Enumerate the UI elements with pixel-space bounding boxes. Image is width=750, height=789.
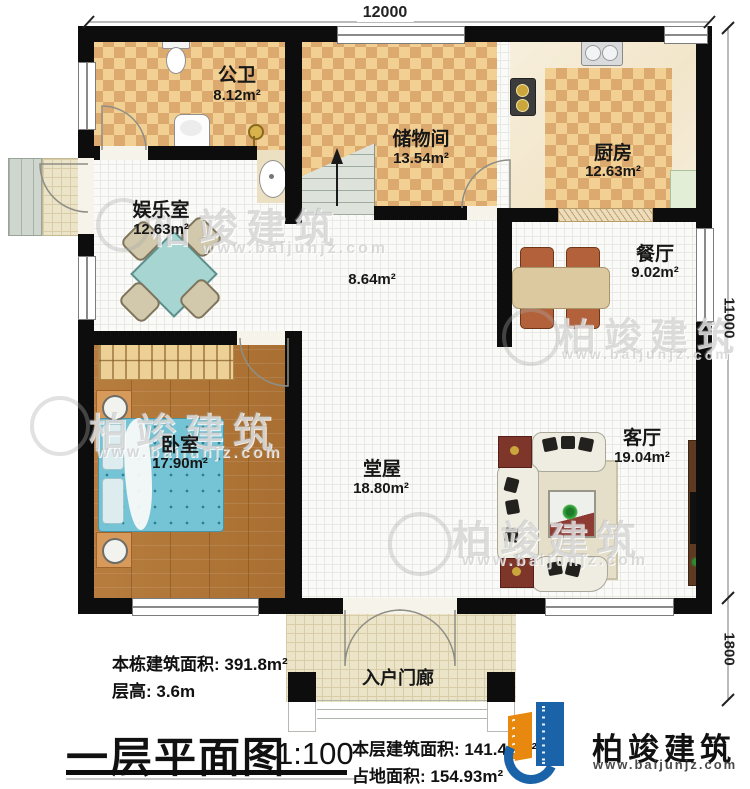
room-area-hallway: 8.64m² (348, 272, 396, 287)
pillow (102, 478, 124, 524)
dimension-porch-depth: 1800 (721, 632, 738, 665)
wall-dining-left (497, 208, 512, 347)
window-top-center (337, 26, 465, 44)
room-area-bathroom: 8.12m² (213, 88, 261, 103)
window-living (545, 598, 674, 616)
bedroom-door-opening (237, 331, 285, 345)
lamp (102, 538, 128, 564)
window-bathroom (78, 62, 96, 130)
plan-scale: 1:100 (276, 736, 354, 772)
storage-door-opening (467, 206, 497, 220)
porch-column-right (487, 672, 515, 702)
window-top-right (664, 26, 708, 44)
window-bedroom (132, 598, 259, 616)
room-label-porch: 入户门廊 (362, 669, 434, 687)
table-plant (562, 504, 578, 520)
dimension-top-width: 12000 (357, 4, 414, 22)
stat-footprint-area: 占地面积: 154.93m² (352, 762, 503, 787)
brand-logo-icon (506, 700, 586, 784)
washbasin-bowl (180, 120, 202, 136)
room-area-living: 19.04m² (614, 450, 670, 465)
entry-door-opening (343, 598, 457, 614)
side-table-ornament (512, 567, 521, 576)
wall-storage-bottom (374, 206, 467, 220)
room-label-living: 客厅 (623, 429, 661, 448)
wall-kitchen-bottom (653, 208, 712, 222)
room-label-bedroom: 卧室 (161, 436, 199, 455)
floor-drain (248, 124, 264, 140)
stat-building-area: 本栋建筑面积: 391.8m² (112, 650, 288, 675)
kitchen-pass-counter (558, 208, 653, 222)
entry-steps (317, 700, 487, 726)
brand-website: www.baijunjz.com (593, 757, 737, 772)
room-area-storage: 13.54m² (393, 151, 449, 166)
sink-bowl-left (585, 45, 601, 61)
stat-floor-height: 层高: 3.6m (112, 677, 195, 702)
lamp (102, 395, 128, 421)
window-entertainment (78, 256, 96, 320)
column-base-left (288, 700, 316, 732)
room-label-entertainment: 娱乐室 (132, 201, 189, 220)
sofa-cushion (504, 527, 519, 543)
wall-bath-storage (285, 26, 302, 224)
side-steps (8, 158, 42, 236)
room-area-dining: 9.02m² (631, 265, 679, 280)
toilet-bowl (166, 47, 186, 74)
room-area-kitchen: 12.63m² (585, 164, 641, 179)
room-label-storage: 储物间 (392, 130, 449, 149)
side-porch-floor (42, 158, 82, 236)
porch-column-left (288, 672, 316, 702)
wall-bedroom-right (285, 331, 302, 614)
room-area-bedroom: 17.90m² (152, 456, 208, 471)
plan-title: 一层平面图 (66, 724, 286, 785)
bathroom-door-opening (100, 146, 148, 160)
pillow (102, 424, 124, 470)
room-label-main-hall: 堂屋 (363, 460, 401, 479)
burner-top (516, 84, 529, 97)
dining-table (512, 267, 610, 309)
room-label-kitchen: 厨房 (594, 144, 632, 163)
wall-bedroom-top (85, 331, 237, 345)
side-table-ornament (510, 446, 519, 455)
burner-bottom (516, 99, 529, 112)
title-underline-shadow (66, 778, 366, 780)
room-area-main-hall: 18.80m² (353, 481, 409, 496)
floor-plan-page: 柏竣建筑 www.baijunjz.com 柏竣建筑 www.baijunjz.… (0, 0, 750, 789)
sink-bowl-right (602, 45, 618, 61)
hall-washbasin (259, 160, 287, 198)
wardrobe (98, 342, 234, 380)
sofa-cushion (505, 499, 520, 515)
sofa-cushion (578, 437, 594, 453)
kitchen-floor (545, 68, 672, 208)
side-door-opening (78, 158, 94, 234)
room-label-dining: 餐厅 (636, 245, 674, 264)
sofa-cushion (547, 561, 563, 576)
hall-washbasin-drain (269, 174, 274, 179)
room-area-entertainment: 12.63m² (133, 222, 189, 237)
window-dining (696, 228, 714, 322)
room-label-bathroom: 公卫 (218, 66, 256, 85)
wall-bath-bottom (148, 146, 257, 160)
dimension-right-height: 11000 (721, 298, 738, 339)
sofa-cushion (561, 436, 575, 449)
